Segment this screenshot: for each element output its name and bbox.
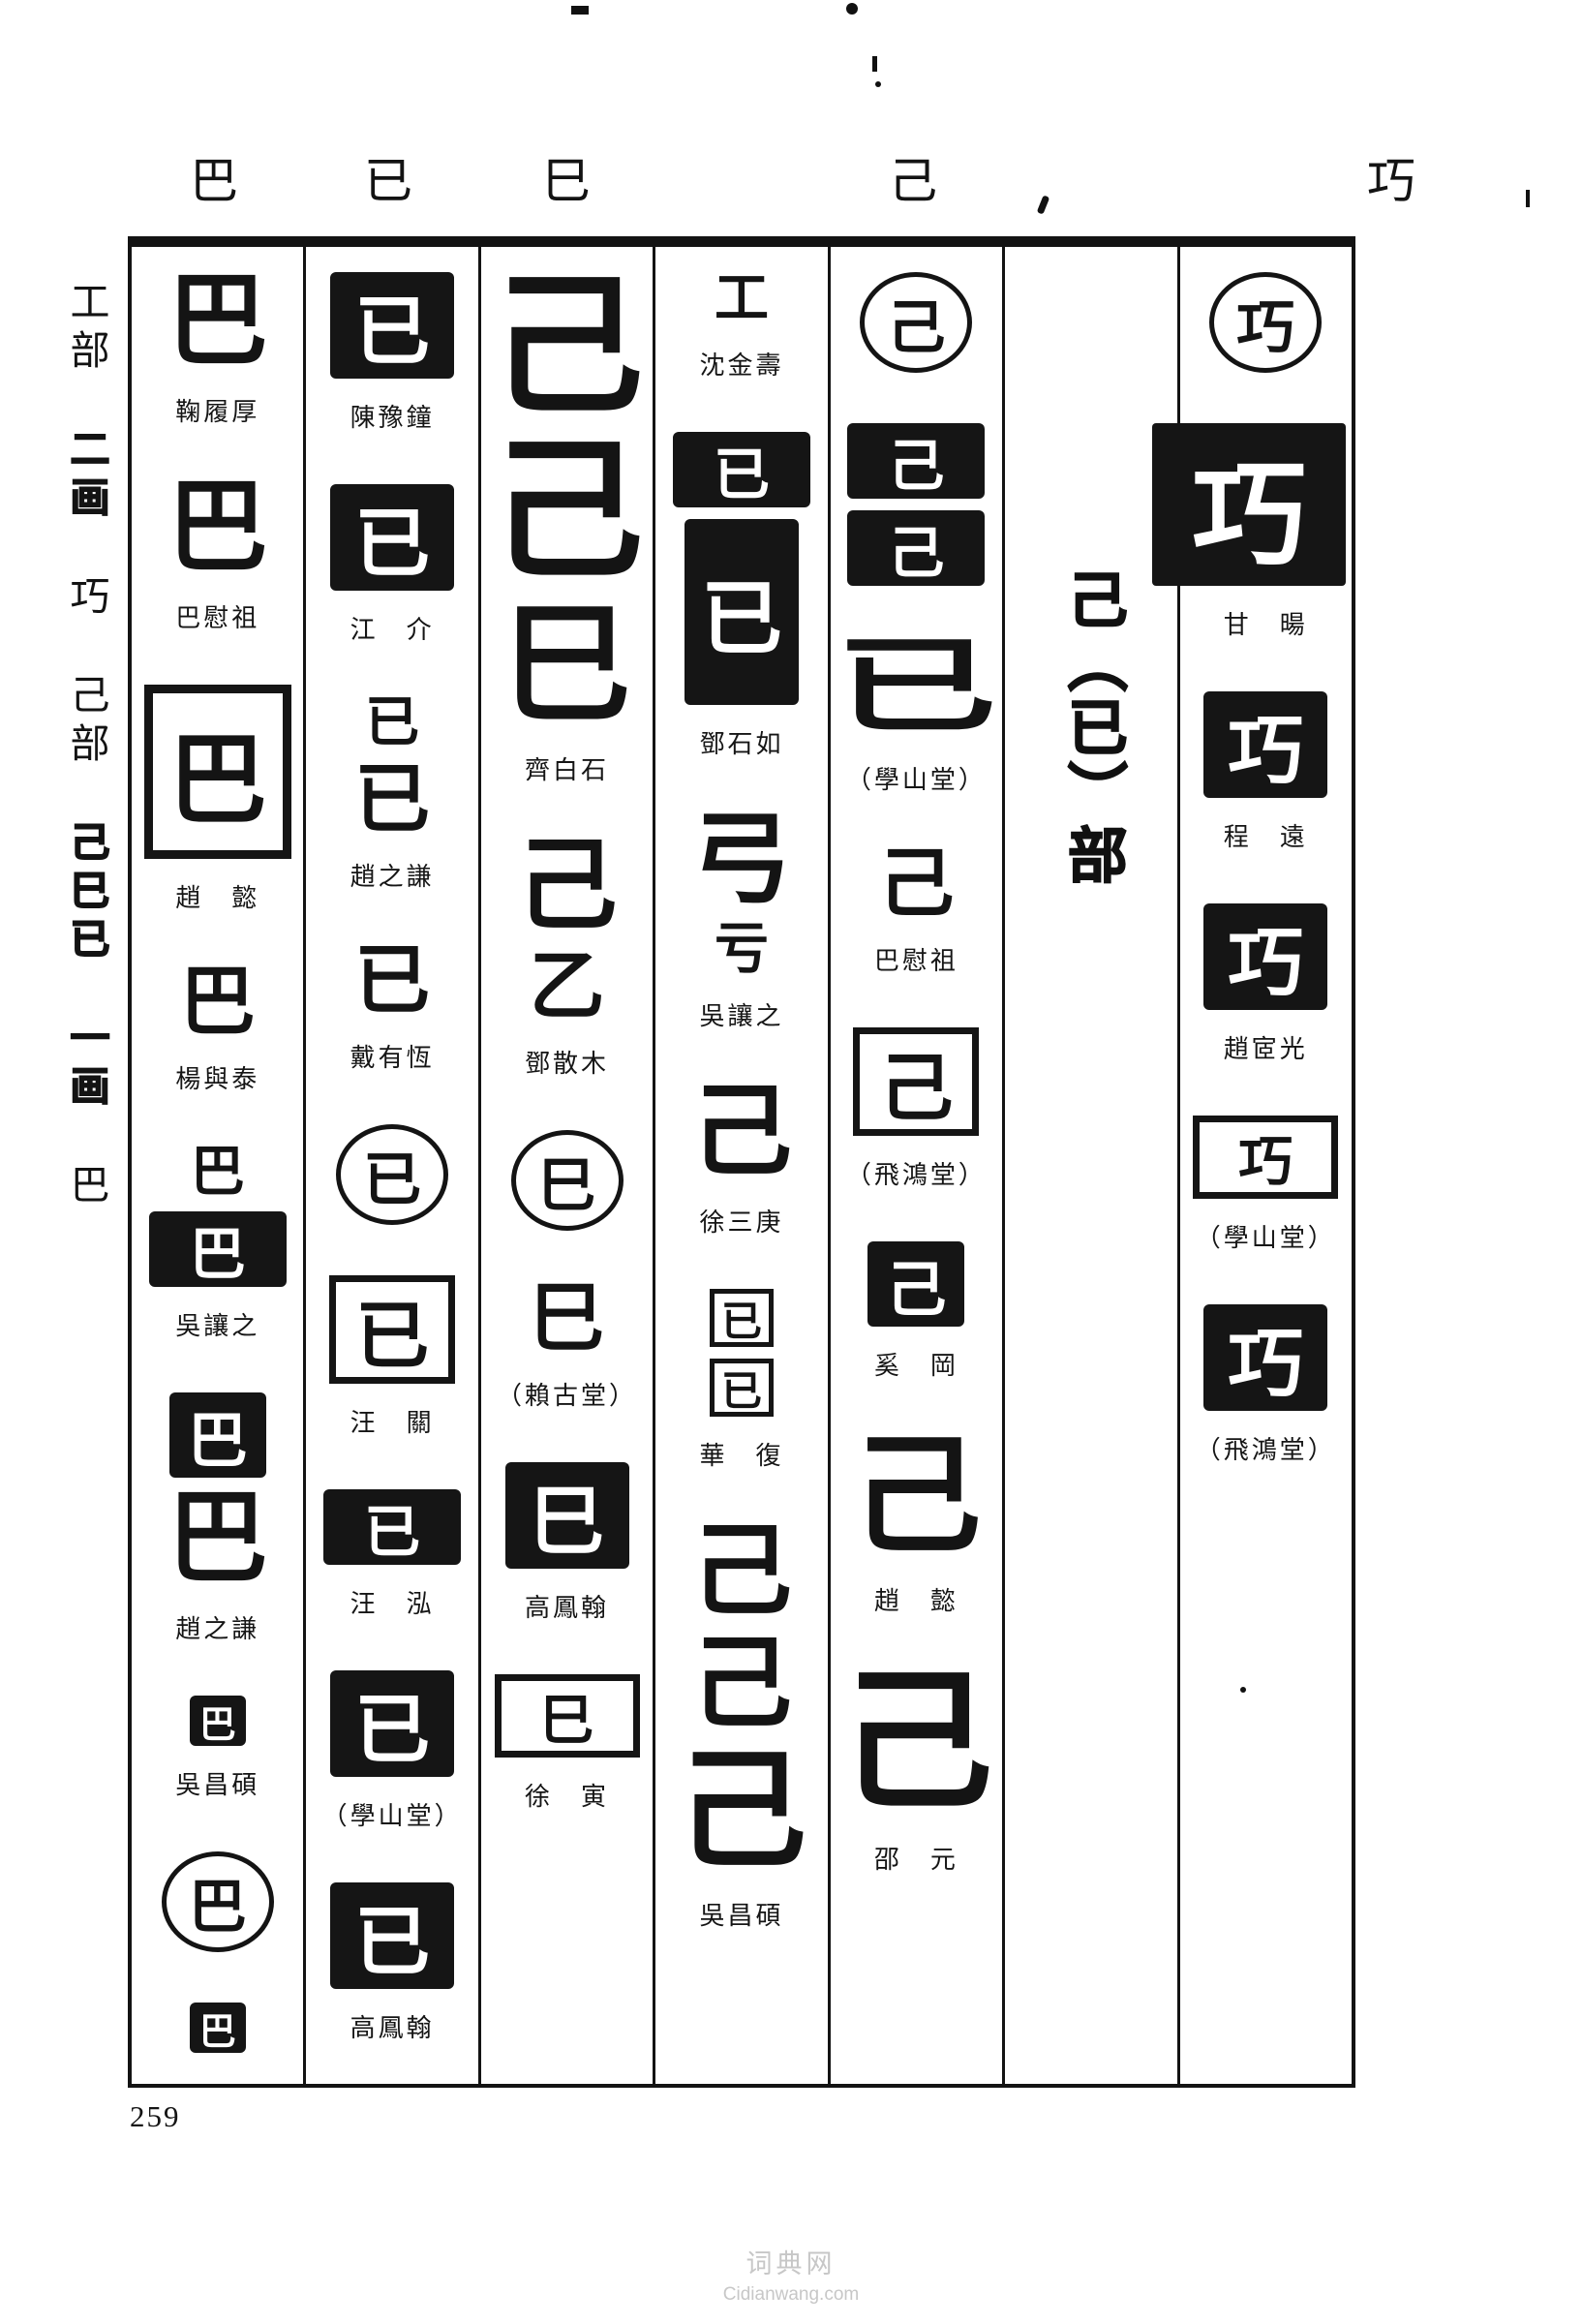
- seal-impression-outline: 巴: [144, 685, 291, 859]
- seal-entry: 己邵 元: [839, 1667, 992, 1876]
- seal-artist-name: 沈金壽: [699, 346, 783, 382]
- seal-artist-name: （學山堂）: [322, 1796, 463, 1832]
- seal-artist-name: （飛鴻堂）: [1196, 1430, 1336, 1466]
- seal-impression-black: 已: [673, 432, 810, 507]
- seal-impression-black: 巴: [169, 1392, 266, 1478]
- seal-impression-black: 巴: [149, 1211, 287, 1287]
- sidebar-item: 一画: [56, 1017, 116, 1114]
- seal-impression-black: 己: [867, 1241, 964, 1327]
- seal-impression-circle: 已: [336, 1124, 448, 1225]
- header-char: 巴: [190, 151, 238, 211]
- seal-impression-outline: 已: [329, 1275, 455, 1384]
- seal-entry: 己己己吳昌碩: [677, 1522, 806, 1932]
- sidebar-index: 工部二画巧己部己巳已一画巴: [56, 281, 116, 1212]
- seal-entry: 巧（飛鴻堂）: [1196, 1304, 1336, 1466]
- seal-artist-name: 華 復: [699, 1436, 783, 1472]
- seal-artist-name: 趙宧光: [1224, 1029, 1308, 1065]
- seal-impression-brush: 巳: [530, 1281, 605, 1357]
- sidebar-item: 二画: [56, 428, 116, 525]
- seal-artist-name: 吳讓之: [699, 996, 783, 1032]
- seal-column: 巴鞠履厚巴巴慰祖巴趙 懿巴楊與泰巴巴吳讓之巴巴趙之謙巴吳昌碩巴巴: [132, 247, 306, 2084]
- seal-entry: 弓亏吳讓之: [691, 810, 792, 1032]
- seal-table: 巴鞠履厚巴巴慰祖巴趙 懿巴楊與泰巴巴吳讓之巴巴趙之謙巴吳昌碩巴巴已陳豫鐘已江 介…: [128, 236, 1355, 2088]
- seal-artist-name: （賴古堂）: [497, 1376, 637, 1412]
- scan-artifact: [875, 81, 881, 87]
- seal-artist-name: （學山堂）: [1196, 1218, 1336, 1254]
- seal-artist-name: 程 遠: [1224, 817, 1308, 853]
- seal-impression-brush: 己: [691, 1522, 792, 1623]
- seal-column: 工沈金壽已已鄧石如弓亏吳讓之己徐三庚已已華 復己己己吳昌碩: [655, 247, 830, 2084]
- seal-entry: 巴: [190, 2003, 246, 2053]
- watermark-site-name: 词典网: [746, 2243, 837, 2280]
- seal-entry: 已: [336, 1124, 448, 1225]
- watermark: 词典网 Cidianwang.com: [0, 2243, 1582, 2306]
- seal-artist-name: 陳豫鐘: [350, 398, 435, 434]
- seal-impression-brush: 己: [851, 1432, 981, 1562]
- header-char: 巧: [1367, 151, 1415, 211]
- seal-impression-black: 已: [323, 1489, 461, 1565]
- seal-artist-name: 甘 暘: [1224, 605, 1308, 641]
- seal-entry: 巴鞠履厚: [167, 272, 268, 428]
- seal-artist-name: 鄧散木: [525, 1044, 609, 1080]
- seal-impression-black: 已: [685, 519, 799, 705]
- seal-impression-black: 已: [330, 1670, 454, 1777]
- seal-impression-black: 巧: [1203, 903, 1327, 1010]
- seal-impression-brush: 巴: [167, 1489, 268, 1590]
- seal-entry: 巧程 遠: [1203, 691, 1327, 853]
- page-number: 259: [130, 2099, 181, 2134]
- seal-entry: 己（飛鴻堂）: [846, 1027, 987, 1191]
- seal-impression-brush: 己: [691, 1635, 792, 1735]
- seal-impression-brush: 已: [354, 943, 430, 1019]
- seal-impression-circle: 巳: [511, 1130, 624, 1231]
- seal-entry: 已已趙之謙: [350, 696, 435, 893]
- seal-artist-name: 汪 泓: [350, 1584, 435, 1620]
- seal-artist-name: 高鳳翰: [525, 1588, 609, 1624]
- seal-impression-brush: 乙: [530, 949, 605, 1024]
- seal-entry: 巴: [162, 1851, 274, 1952]
- seal-entry: 己己: [847, 423, 985, 586]
- seal-column: 已陳豫鐘已江 介已已趙之謙已戴有恆已已汪 關已汪 泓已（學山堂）已高鳳翰: [306, 247, 480, 2084]
- seal-entry: 巴巴趙之謙: [167, 1392, 268, 1645]
- seal-impression-brush: 亏: [715, 923, 769, 977]
- seal-impression-black: 己: [847, 423, 985, 499]
- seal-entry: 已高鳳翰: [330, 1882, 454, 2044]
- seal-entry: 已江 介: [330, 484, 454, 646]
- seal-artist-name: 高鳳翰: [350, 2008, 435, 2044]
- seal-impression-brush: 巴: [191, 1146, 245, 1200]
- seal-artist-name: 江 介: [350, 610, 435, 646]
- seal-impression-brush: 已: [836, 636, 997, 741]
- seal-entry: 已（學山堂）: [322, 1670, 463, 1832]
- seal-column: 己己巳齊白石己乙鄧散木巳巳（賴古堂）巳高鳳翰巳徐 寅: [481, 247, 655, 2084]
- seal-artist-name: 吳昌碩: [699, 1896, 783, 1932]
- sidebar-item: 巴: [56, 1164, 116, 1212]
- section-title: 己（已）部: [1061, 568, 1121, 888]
- seal-impression-black: 巧: [1152, 423, 1346, 586]
- seal-impression-circle: 巧: [1209, 272, 1322, 373]
- seal-artist-name: 鞠履厚: [175, 392, 259, 428]
- seal-entry: 巧: [1209, 272, 1322, 373]
- seal-impression-black: 巧: [1203, 691, 1327, 798]
- seal-artist-name: 趙 懿: [874, 1581, 958, 1617]
- seal-artist-name: 鄧石如: [699, 724, 783, 760]
- header-char: 己: [889, 151, 937, 211]
- seal-entry: 已汪 泓: [323, 1489, 461, 1620]
- sidebar-item: 己部: [56, 674, 116, 771]
- seal-column: 己己己已（學山堂）己巴慰祖己（飛鴻堂）己奚 岡己趙 懿己邵 元: [831, 247, 1005, 2084]
- seal-impression-black: 巴: [190, 1696, 246, 1746]
- seal-impression-black: 巳: [505, 1462, 629, 1569]
- seal-artist-name: 巴慰祖: [874, 941, 958, 977]
- seal-impression-outline: 已: [710, 1359, 774, 1417]
- seal-artist-name: 徐三庚: [699, 1203, 783, 1238]
- seal-artist-name: 趙之謙: [350, 857, 435, 893]
- seal-entry: 巳高鳳翰: [505, 1462, 629, 1624]
- seal-entry: 巳: [511, 1130, 624, 1231]
- seal-artist-name: 趙 懿: [175, 878, 259, 914]
- header-char: 已: [364, 151, 412, 211]
- seal-column: 巧巧甘 暘巧程 遠巧趙宧光巧（學山堂）巧（飛鴻堂）: [1180, 247, 1352, 2084]
- seal-impression-brush: 己: [839, 1667, 992, 1820]
- seal-entry: 工沈金壽: [699, 272, 783, 382]
- seal-impression-brush: 弓: [691, 810, 792, 911]
- seal-impression-brush: 巳: [502, 601, 632, 731]
- seal-entry: 已（學山堂）: [846, 636, 987, 796]
- seal-entry: 巴楊與泰: [175, 964, 259, 1095]
- seal-impression-outline: 己: [853, 1027, 979, 1136]
- watermark-site-url: Cidianwang.com: [723, 2284, 859, 2306]
- seal-impression-brush: 己: [878, 846, 954, 922]
- seal-entry: 巧甘 暘: [1185, 423, 1346, 641]
- seal-entry: 己奚 岡: [867, 1241, 964, 1382]
- seal-impression-brush: 己: [691, 1083, 792, 1183]
- seal-artist-name: 楊與泰: [175, 1059, 259, 1095]
- seal-impression-black: 己: [847, 510, 985, 586]
- page-header-row: 巴已巳己巧: [0, 151, 1582, 213]
- seal-impression-outline: 巳: [495, 1674, 640, 1758]
- seal-impression-brush: 已: [354, 762, 430, 838]
- seal-entry: 己巴慰祖: [874, 846, 958, 977]
- header-char: 巳: [542, 151, 591, 211]
- seal-entry: 己徐三庚: [691, 1083, 792, 1238]
- seal-entry: 已已鄧石如: [673, 432, 810, 760]
- seal-artist-name: 汪 關: [350, 1403, 435, 1439]
- seal-impression-brush: 己: [517, 837, 618, 937]
- seal-impression-brush: 工: [715, 272, 769, 326]
- seal-impression-outline: 巧: [1193, 1116, 1338, 1199]
- dictionary-page: 巴已巳己巧 工部二画巧己部己巳已一画巴 巴鞠履厚巴巴慰祖巴趙 懿巴楊與泰巴巴吳讓…: [0, 0, 1582, 2324]
- seal-impression-outline: 已: [710, 1289, 774, 1347]
- seal-impression-black: 已: [330, 484, 454, 591]
- seal-impression-brush: 巴: [180, 964, 256, 1040]
- seal-entry: 已戴有恆: [350, 943, 435, 1074]
- seal-impression-circle: 巴: [162, 1851, 274, 1952]
- seal-artist-name: 徐 寅: [525, 1777, 609, 1813]
- seal-artist-name: 趙之謙: [175, 1609, 259, 1645]
- seal-entry: 己己巳齊白石: [491, 272, 644, 786]
- seal-impression-black: 已: [330, 272, 454, 379]
- seal-impression-brush: 巴: [167, 478, 268, 579]
- seal-impression-brush: 已: [365, 696, 419, 750]
- seal-impression-black: 巧: [1203, 1304, 1327, 1411]
- scan-artifact: [571, 6, 589, 15]
- scan-artifact: [846, 3, 858, 15]
- seal-artist-name: 吳讓之: [175, 1306, 259, 1342]
- seal-impression-black: 已: [330, 1882, 454, 1989]
- seal-entry: 已汪 關: [329, 1275, 455, 1439]
- seal-entry: 己: [860, 272, 972, 373]
- seal-artist-name: 吳昌碩: [175, 1765, 259, 1801]
- seal-entry: 巴趙 懿: [144, 685, 291, 914]
- seal-entry: 己乙鄧散木: [517, 837, 618, 1080]
- seal-artist-name: 奚 岡: [874, 1346, 958, 1382]
- sidebar-item: 己巳已: [56, 821, 116, 966]
- seal-impression-black: 巴: [190, 2003, 246, 2053]
- seal-impression-circle: 己: [860, 272, 972, 373]
- seal-entry: 己趙 懿: [851, 1432, 981, 1617]
- seal-entry: 巴吳昌碩: [175, 1696, 259, 1801]
- seal-artist-name: 齊白石: [525, 750, 609, 786]
- seal-artist-name: 巴慰祖: [175, 598, 259, 634]
- seal-entry: 巴巴慰祖: [167, 478, 268, 634]
- seal-entry: 巳徐 寅: [495, 1674, 640, 1813]
- seal-entry: 已陳豫鐘: [330, 272, 454, 434]
- sidebar-item: 工部: [56, 281, 116, 378]
- scan-artifact: [872, 56, 877, 72]
- seal-impression-brush: 己: [677, 1747, 806, 1877]
- seal-artist-name: （飛鴻堂）: [846, 1155, 987, 1191]
- seal-entry: 巧趙宧光: [1203, 903, 1327, 1065]
- seal-artist-name: （學山堂）: [846, 760, 987, 796]
- seal-entry: 巴巴吳讓之: [149, 1146, 287, 1342]
- seal-artist-name: 邵 元: [874, 1840, 958, 1876]
- sidebar-item: 巧: [56, 575, 116, 624]
- seal-entry: 巳（賴古堂）: [497, 1281, 637, 1412]
- seal-entry: 巧（學山堂）: [1193, 1116, 1338, 1254]
- seal-impression-brush: 巴: [167, 272, 268, 373]
- seal-impression-brush: 己: [491, 272, 644, 425]
- seal-artist-name: 戴有恆: [350, 1038, 435, 1074]
- seal-entry: 已已華 復: [699, 1289, 783, 1472]
- seal-impression-brush: 己: [491, 437, 644, 590]
